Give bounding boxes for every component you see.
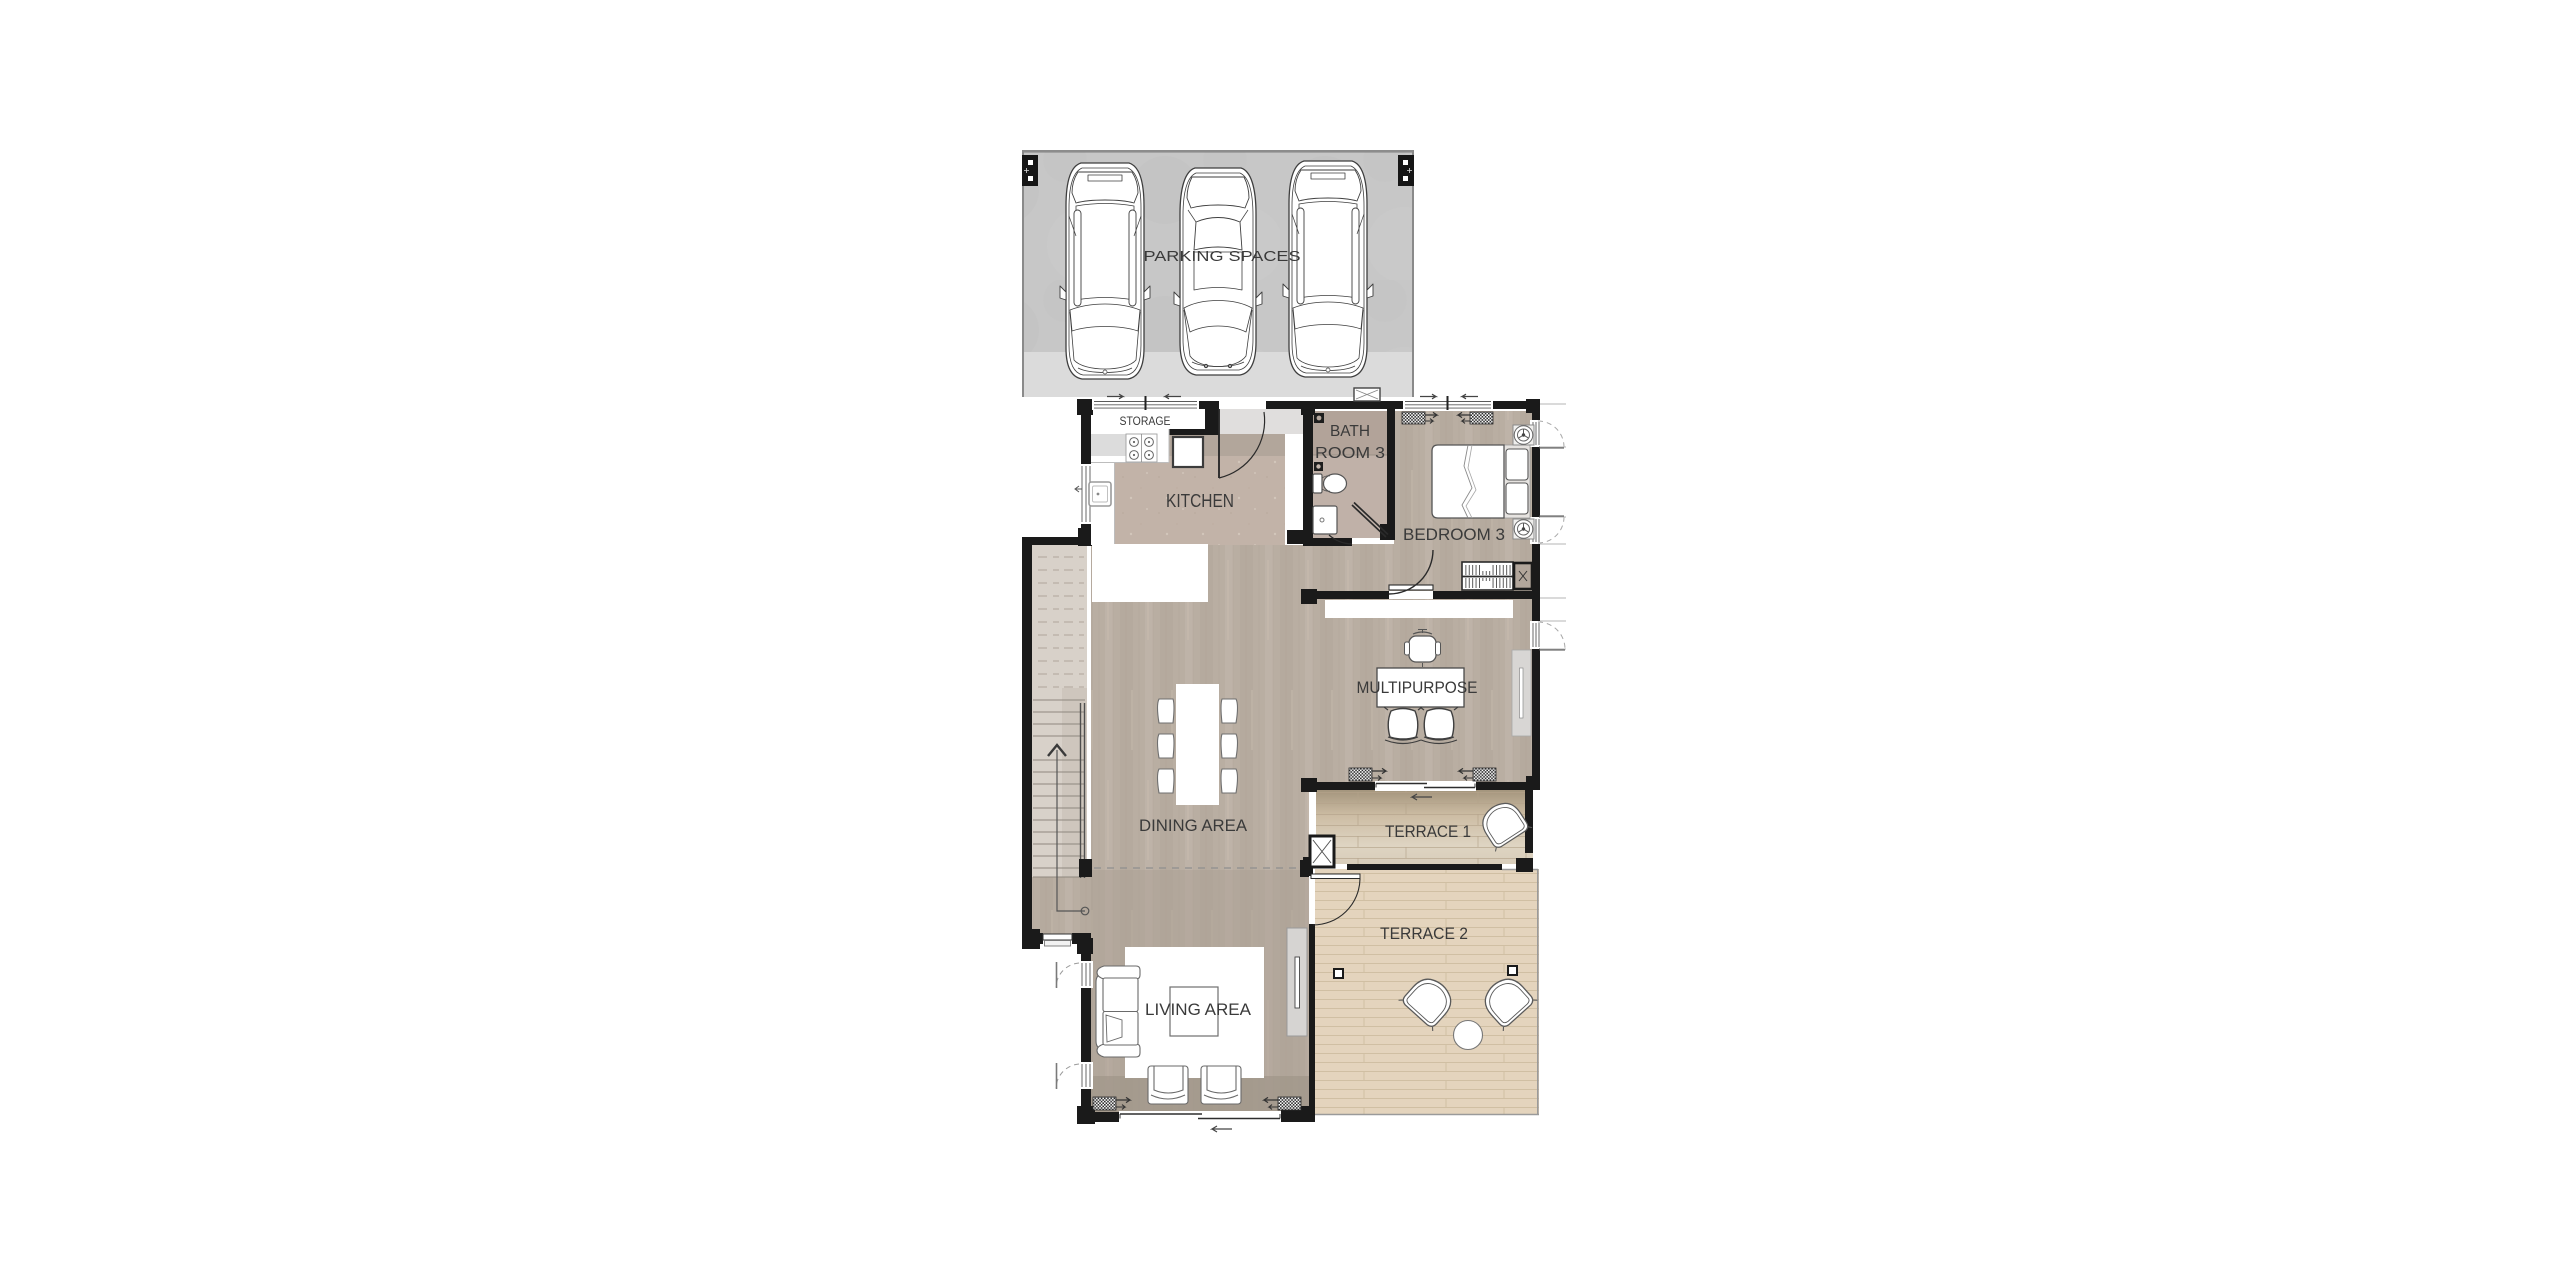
svg-text:TERRACE 2: TERRACE 2 [1380,925,1468,943]
svg-text:BEDROOM 3: BEDROOM 3 [1403,526,1505,544]
svg-text:LIVING AREA: LIVING AREA [1145,1001,1251,1019]
svg-text:DINING AREA: DINING AREA [1139,817,1247,835]
svg-text:ROOM 3: ROOM 3 [1315,445,1385,462]
svg-text:TERRACE 1: TERRACE 1 [1385,823,1471,841]
svg-text:MULTIPURPOSE: MULTIPURPOSE [1357,679,1478,697]
svg-text:STORAGE: STORAGE [1120,416,1171,428]
svg-text:PARKING SPACES: PARKING SPACES [1144,249,1301,265]
svg-text:KITCHEN: KITCHEN [1166,491,1234,511]
svg-text:BATH: BATH [1330,423,1370,440]
